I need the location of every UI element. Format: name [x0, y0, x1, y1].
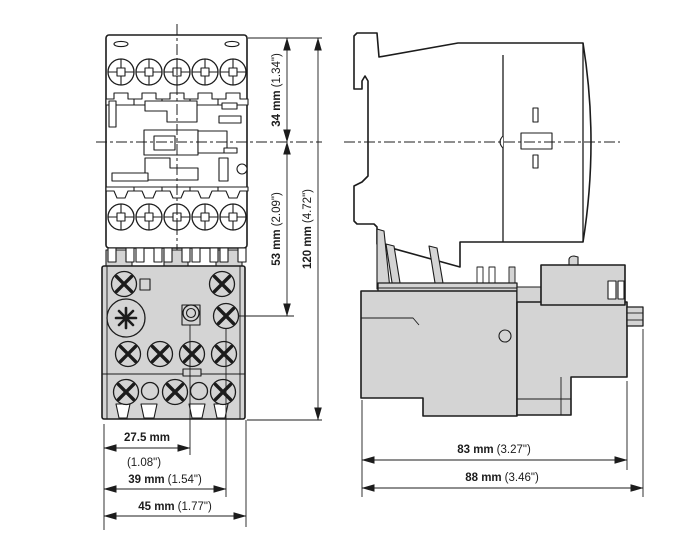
dim-label-27-5in: (1.08") — [127, 457, 161, 469]
dim-label-53mm: 53 mm(2.09") — [271, 192, 283, 266]
screw-icon — [192, 204, 218, 230]
dim-label-27-5mm: 27.5 mm — [124, 432, 170, 444]
relay-latch-step — [517, 287, 541, 302]
screw-icon — [211, 380, 236, 405]
relay-side-body-right — [517, 302, 627, 415]
overload-relay-front — [102, 266, 245, 419]
contactor-side-outline — [354, 33, 591, 267]
adjustment-dial — [107, 299, 145, 337]
relay-hook — [569, 256, 578, 265]
screw-icon — [163, 380, 188, 405]
screw-icon — [116, 342, 141, 367]
screw-icon — [180, 342, 205, 367]
screw-icon — [148, 342, 173, 367]
dim-label-120mm: 120 mm(4.72") — [302, 189, 314, 269]
screw-icon — [114, 380, 139, 405]
side-latch-window — [521, 133, 552, 149]
relay-detail-rect — [140, 279, 150, 290]
screw-icon — [108, 59, 134, 85]
screw-icon — [220, 59, 246, 85]
relay-notch — [608, 281, 616, 299]
side-connector — [627, 307, 643, 326]
side-view — [344, 33, 643, 416]
screw-icon — [112, 272, 137, 297]
screw-icon — [108, 204, 134, 230]
relay-notch — [618, 281, 624, 299]
screw-icon — [210, 272, 235, 297]
dim-label-34mm: 34 mm(1.34") — [271, 53, 283, 127]
side-slot — [533, 155, 538, 168]
front-view — [96, 24, 322, 419]
dim-label-83mm: 83 mm(3.27") — [457, 444, 531, 456]
contactor-front — [96, 24, 322, 272]
screw-icon — [136, 204, 162, 230]
screw-icon — [220, 204, 246, 230]
terminal-hole — [191, 383, 208, 400]
relay-screw-row-bottom — [114, 380, 236, 405]
screw-icon — [212, 342, 237, 367]
contactor-side — [344, 33, 620, 267]
relay-center-tab — [183, 369, 201, 376]
dimension-drawing: 34 mm(1.34") 53 mm(2.09") 120 mm(4.72") … — [0, 0, 700, 556]
dim-label-39mm: 39 mm(1.54") — [128, 474, 202, 486]
relay-side-body — [361, 291, 517, 416]
dim-label-45mm: 45 mm(1.77") — [138, 501, 212, 513]
screw-icon — [214, 304, 239, 329]
overload-relay-side — [361, 229, 643, 416]
mounting-slot-icon — [114, 41, 128, 46]
test-button — [182, 305, 200, 325]
dim-label-88mm: 88 mm(3.46") — [465, 472, 539, 484]
side-slot — [533, 108, 538, 122]
terminal-hole — [142, 383, 159, 400]
screw-icon — [192, 59, 218, 85]
indicator-dot — [237, 164, 247, 174]
relay-side-hole — [499, 330, 511, 342]
screw-icon — [136, 59, 162, 85]
drawing-canvas: 34 mm(1.34") 53 mm(2.09") 120 mm(4.72") … — [0, 0, 700, 556]
mounting-slot-icon — [225, 41, 239, 46]
